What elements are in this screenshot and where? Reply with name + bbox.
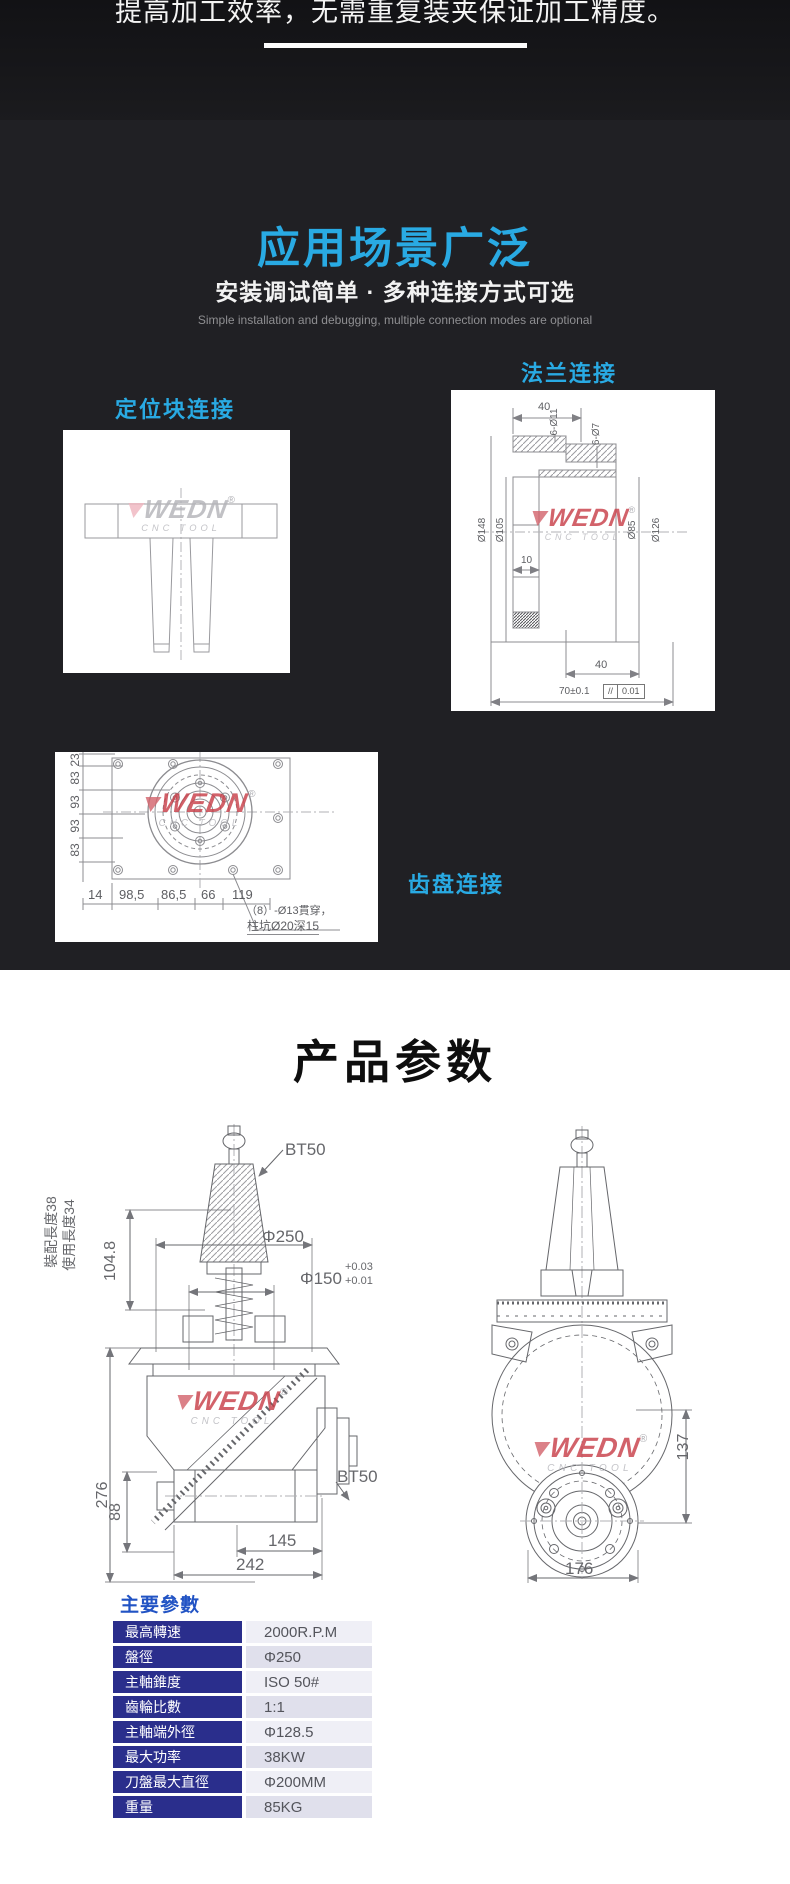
dim-phi150: Φ150 <box>300 1270 342 1287</box>
param-value: 85KG <box>246 1796 372 1818</box>
dim-flange-d105: Ø105 <box>496 518 506 542</box>
dim-gear-83b: 83 <box>69 843 81 856</box>
dim-gear-66: 66 <box>201 888 215 901</box>
dim-gear-119: 119 <box>232 888 253 901</box>
parallelism-tolerance-frame: // 0.01 <box>603 684 645 699</box>
note-bolt-holes-line1: （8）-Ø13貫穿， <box>246 906 332 917</box>
specs-title: 产品参数 <box>0 1026 790 1092</box>
side-view-cad <box>55 1120 385 1590</box>
tolerance-value: 0.01 <box>618 685 644 698</box>
param-label: 最大功率 <box>113 1746 242 1768</box>
dim-flange-10: 10 <box>521 556 532 566</box>
param-label: 主軸端外徑 <box>113 1721 242 1743</box>
dim-flange-d148: Ø148 <box>478 518 488 542</box>
dim-assembly-length: 裝配長度38 <box>44 1196 58 1268</box>
param-value: 1:1 <box>246 1696 372 1718</box>
spec-table: 最高轉速 2000R.P.M 盤徑 Φ250 主軸錐度 ISO 50# 齒輪比數… <box>109 1618 376 1821</box>
dim-phi250: Φ250 <box>262 1228 304 1245</box>
label-positioning-block-connection: 定位块连接 <box>115 392 235 424</box>
dim-flange-40-depth: 40 <box>595 660 607 671</box>
param-label: 重量 <box>113 1796 242 1818</box>
dim-flange-d85: Ø85 <box>628 521 638 540</box>
section-subtitle: 安装调试简单 · 多种连接方式可选 <box>0 273 790 307</box>
param-value: Φ128.5 <box>246 1721 372 1743</box>
params-title: 主要參數 <box>120 1590 200 1617</box>
param-label: 最高轉速 <box>113 1621 242 1643</box>
applications-section: 应用场景广泛 安装调试简单 · 多种连接方式可选 Simple installa… <box>0 120 790 970</box>
flange-drawing: 40 6-Ø11 6-Ø7 Ø148 Ø105 Ø85 Ø126 10 40 7… <box>451 390 715 711</box>
dim-phi150-tol-upper: +0.03 <box>345 1262 373 1273</box>
gear-plate-drawing: 23 83 93 93 83 14 98,5 86,5 66 119 （8）-Ø… <box>55 752 378 942</box>
table-row: 重量 85KG <box>113 1796 372 1818</box>
specs-section: 产品参数 <box>0 970 790 1884</box>
hero-banner: 提高加工效率，无需重复装夹保证加工精度。 <box>0 0 790 120</box>
product-page: 提高加工效率，无需重复装夹保证加工精度。 应用场景广泛 安装调试简单 · 多种连… <box>0 0 790 1884</box>
dim-gear-93a: 93 <box>69 795 81 808</box>
positioning-block-cad <box>63 430 290 673</box>
dim-use-length: 使用長度34 <box>62 1199 76 1271</box>
dim-104-8: 104.8 <box>103 1241 119 1281</box>
dim-gear-98-5: 98,5 <box>119 888 144 901</box>
positioning-block-drawing: WEDN® CNC TOOL <box>63 430 290 673</box>
dim-242: 242 <box>236 1556 264 1573</box>
dim-bt50-side: BT50 <box>337 1468 378 1485</box>
table-row: 齒輪比數 1:1 <box>113 1696 372 1718</box>
dim-flange-d126: Ø126 <box>652 518 662 542</box>
label-flange-connection: 法兰连接 <box>521 356 617 388</box>
dimension-drawings: 裝配長度38 使用長度34 104.8 BT50 Φ250 Φ150 +0.03… <box>0 1120 790 1600</box>
dim-137: 137 <box>676 1434 692 1461</box>
table-row: 主軸錐度 ISO 50# <box>113 1671 372 1693</box>
dim-gear-14: 14 <box>88 888 102 901</box>
dim-bt50-top: BT50 <box>285 1141 326 1158</box>
dim-flange-6xd11: 6-Ø11 <box>550 408 560 435</box>
param-label: 齒輪比數 <box>113 1696 242 1718</box>
section-subtitle-en: Simple installation and debugging, multi… <box>0 313 790 327</box>
dim-gear-23: 23 <box>69 753 81 766</box>
dim-flange-70: 70±0.1 <box>559 687 590 697</box>
param-value: ISO 50# <box>246 1671 372 1693</box>
front-view-cad <box>440 1120 740 1590</box>
param-value: Φ250 <box>246 1646 372 1668</box>
param-value: Φ200MM <box>246 1771 372 1793</box>
dim-flange-6xd7: 6-Ø7 <box>592 423 602 445</box>
section-title: 应用场景广泛 <box>0 214 790 276</box>
flange-cad <box>451 390 715 711</box>
dim-176: 176 <box>565 1560 593 1577</box>
param-value: 2000R.P.M <box>246 1621 372 1643</box>
table-row: 盤徑 Φ250 <box>113 1646 372 1668</box>
note-bolt-holes-line2: 柱坑Ø20深15 <box>247 920 319 935</box>
dim-phi150-tol-lower: +0.01 <box>345 1276 373 1287</box>
param-label: 刀盤最大直徑 <box>113 1771 242 1793</box>
table-row: 主軸端外徑 Φ128.5 <box>113 1721 372 1743</box>
hero-headline: 提高加工效率，无需重复装夹保证加工精度。 <box>0 0 790 29</box>
dim-gear-83a: 83 <box>69 771 81 784</box>
param-value: 38KW <box>246 1746 372 1768</box>
hero-divider <box>264 43 527 48</box>
table-row: 最高轉速 2000R.P.M <box>113 1621 372 1643</box>
param-label: 盤徑 <box>113 1646 242 1668</box>
dim-gear-86-5: 86,5 <box>161 888 186 901</box>
dim-gear-93b: 93 <box>69 819 81 832</box>
param-label: 主軸錐度 <box>113 1671 242 1693</box>
dim-145: 145 <box>268 1532 296 1549</box>
label-gear-plate-connection: 齿盘连接 <box>408 867 504 899</box>
dim-88: 88 <box>108 1503 124 1521</box>
table-row: 最大功率 38KW <box>113 1746 372 1768</box>
tolerance-symbol: // <box>604 685 618 698</box>
table-row: 刀盤最大直徑 Φ200MM <box>113 1771 372 1793</box>
